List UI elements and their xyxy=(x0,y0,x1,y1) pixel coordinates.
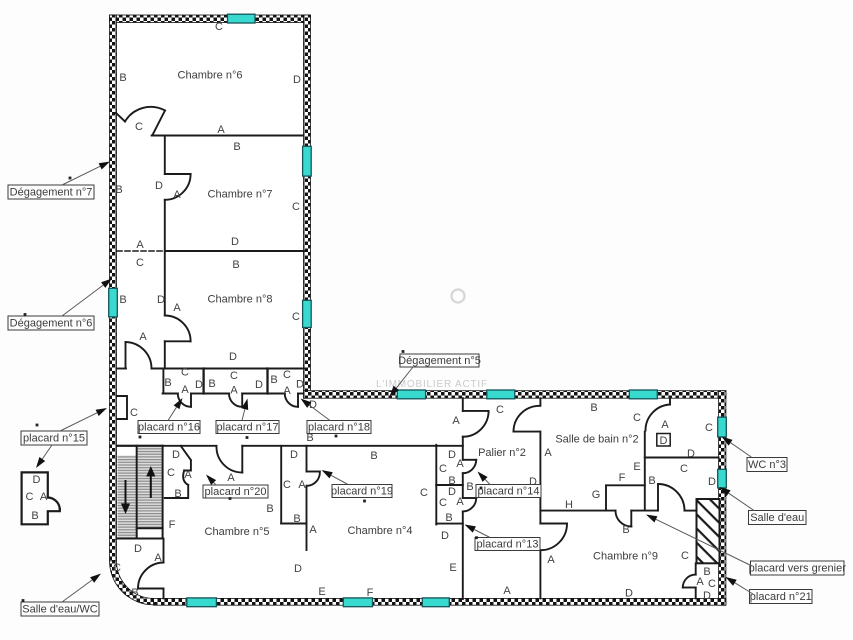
svg-text:Palier n°2: Palier n°2 xyxy=(478,447,526,459)
svg-text:C: C xyxy=(215,21,223,33)
svg-text:placard n°13: placard n°13 xyxy=(477,539,539,551)
svg-text:B: B xyxy=(445,512,452,524)
svg-text:A: A xyxy=(139,331,147,343)
svg-text:F: F xyxy=(367,587,374,599)
svg-text:D: D xyxy=(195,379,203,391)
svg-text:B: B xyxy=(590,402,597,414)
svg-text:B: B xyxy=(622,524,629,536)
svg-text:C: C xyxy=(439,463,447,475)
svg-text:A: A xyxy=(503,585,511,597)
svg-text:A: A xyxy=(544,447,552,459)
svg-text:B: B xyxy=(131,587,138,599)
svg-text:Dégagement n°5: Dégagement n°5 xyxy=(398,355,481,367)
svg-text:A: A xyxy=(227,472,235,484)
svg-text:D: D xyxy=(441,530,449,542)
svg-text:D: D xyxy=(448,486,456,498)
svg-text:D: D xyxy=(687,448,695,460)
svg-text:D: D xyxy=(157,294,165,306)
svg-text:placard n°20: placard n°20 xyxy=(205,486,267,498)
svg-text:B: B xyxy=(31,510,38,522)
svg-text:Dégagement n°7: Dégagement n°7 xyxy=(10,187,93,199)
svg-text:C: C xyxy=(680,463,688,475)
svg-text:H: H xyxy=(565,499,573,511)
svg-text:C: C xyxy=(708,578,716,590)
svg-text:A: A xyxy=(181,384,189,396)
svg-text:B: B xyxy=(174,488,181,500)
svg-text:B: B xyxy=(270,374,277,386)
svg-text:A: A xyxy=(173,302,181,314)
svg-text:placard n°17: placard n°17 xyxy=(217,422,279,434)
svg-text:Salle de bain n°2: Salle de bain n°2 xyxy=(555,434,638,446)
svg-text:B: B xyxy=(233,141,240,153)
svg-text:C: C xyxy=(705,422,713,434)
svg-text:D: D xyxy=(309,399,317,411)
svg-text:C: C xyxy=(420,487,428,499)
svg-text:B: B xyxy=(293,513,300,525)
svg-text:D: D xyxy=(290,449,298,461)
svg-text:C: C xyxy=(26,491,34,503)
svg-text:Dégagement n°6: Dégagement n°6 xyxy=(10,318,93,330)
svg-text:A: A xyxy=(154,552,162,564)
svg-text:placard n°16: placard n°16 xyxy=(138,422,200,434)
svg-text:A: A xyxy=(184,469,192,481)
svg-text:D: D xyxy=(448,449,456,461)
svg-text:C: C xyxy=(292,201,300,213)
svg-text:F: F xyxy=(169,519,176,531)
svg-text:D: D xyxy=(703,590,711,602)
svg-text:A: A xyxy=(661,419,669,431)
svg-text:placard n°21: placard n°21 xyxy=(750,591,812,603)
svg-text:D: D xyxy=(134,543,142,555)
svg-text:Chambre n°7: Chambre n°7 xyxy=(208,189,273,201)
svg-text:C: C xyxy=(681,550,689,562)
svg-text:D: D xyxy=(229,351,237,363)
svg-text:Chambre n°4: Chambre n°4 xyxy=(348,525,413,537)
svg-text:B: B xyxy=(648,475,655,487)
svg-text:placard n°19: placard n°19 xyxy=(331,486,393,498)
svg-text:Salle d'eau: Salle d'eau xyxy=(750,512,804,524)
svg-text:placard n°18: placard n°18 xyxy=(308,422,370,434)
svg-text:WC n°3: WC n°3 xyxy=(748,459,786,471)
svg-text:F: F xyxy=(619,472,626,484)
svg-text:B: B xyxy=(119,72,126,84)
svg-text:Salle d'eau/WC: Salle d'eau/WC xyxy=(22,604,98,616)
svg-text:placard n°14: placard n°14 xyxy=(478,486,540,498)
svg-text:C: C xyxy=(181,367,189,379)
svg-text:C: C xyxy=(633,412,641,424)
svg-text:Chambre n°9: Chambre n°9 xyxy=(593,551,658,563)
svg-text:E: E xyxy=(633,461,640,473)
svg-text:C: C xyxy=(292,311,300,323)
svg-text:Chambre n°5: Chambre n°5 xyxy=(205,526,270,538)
svg-text:C: C xyxy=(230,370,238,382)
svg-text:D: D xyxy=(155,180,163,192)
svg-text:A: A xyxy=(136,239,144,251)
svg-text:D: D xyxy=(296,379,304,391)
svg-text:G: G xyxy=(592,489,601,501)
svg-text:C: C xyxy=(136,257,144,269)
svg-text:B: B xyxy=(703,566,710,578)
svg-text:A: A xyxy=(547,554,555,566)
svg-text:A: A xyxy=(309,524,317,536)
svg-text:A: A xyxy=(452,415,460,427)
svg-text:E: E xyxy=(449,562,456,574)
svg-text:B: B xyxy=(208,378,215,390)
svg-text:C: C xyxy=(113,562,121,574)
svg-text:C: C xyxy=(130,407,138,419)
svg-text:C: C xyxy=(167,467,175,479)
svg-text:A: A xyxy=(173,189,181,201)
svg-text:B: B xyxy=(370,450,377,462)
svg-text:D: D xyxy=(660,435,668,447)
svg-text:D: D xyxy=(231,236,239,248)
svg-text:B: B xyxy=(119,294,126,306)
svg-text:B: B xyxy=(115,184,122,196)
svg-text:C: C xyxy=(283,369,291,381)
svg-text:B: B xyxy=(266,503,273,515)
svg-text:A: A xyxy=(696,576,704,588)
svg-text:D: D xyxy=(255,379,263,391)
svg-text:C: C xyxy=(439,497,447,509)
svg-text:D: D xyxy=(172,449,180,461)
svg-text:A: A xyxy=(298,479,306,491)
svg-text:D: D xyxy=(294,563,302,575)
svg-text:D: D xyxy=(33,474,41,486)
svg-text:A: A xyxy=(456,496,464,508)
svg-text:B: B xyxy=(164,377,171,389)
svg-text:C: C xyxy=(283,479,291,491)
svg-text:A: A xyxy=(283,385,291,397)
svg-text:D: D xyxy=(708,476,716,488)
svg-text:C: C xyxy=(135,121,143,133)
svg-text:A: A xyxy=(230,385,238,397)
svg-text:Chambre n°8: Chambre n°8 xyxy=(208,294,273,306)
svg-text:C: C xyxy=(496,404,504,416)
svg-text:placard n°15: placard n°15 xyxy=(23,433,85,445)
svg-text:A: A xyxy=(40,491,48,503)
svg-text:placard vers grenier: placard vers grenier xyxy=(749,563,847,575)
svg-text:A: A xyxy=(456,458,464,470)
svg-text:Chambre n°6: Chambre n°6 xyxy=(178,70,243,82)
svg-text:E: E xyxy=(318,586,325,598)
svg-text:B: B xyxy=(466,481,473,493)
svg-text:B: B xyxy=(232,259,239,271)
svg-text:D: D xyxy=(625,588,633,600)
svg-text:D: D xyxy=(293,74,301,86)
svg-text:A: A xyxy=(217,124,225,136)
